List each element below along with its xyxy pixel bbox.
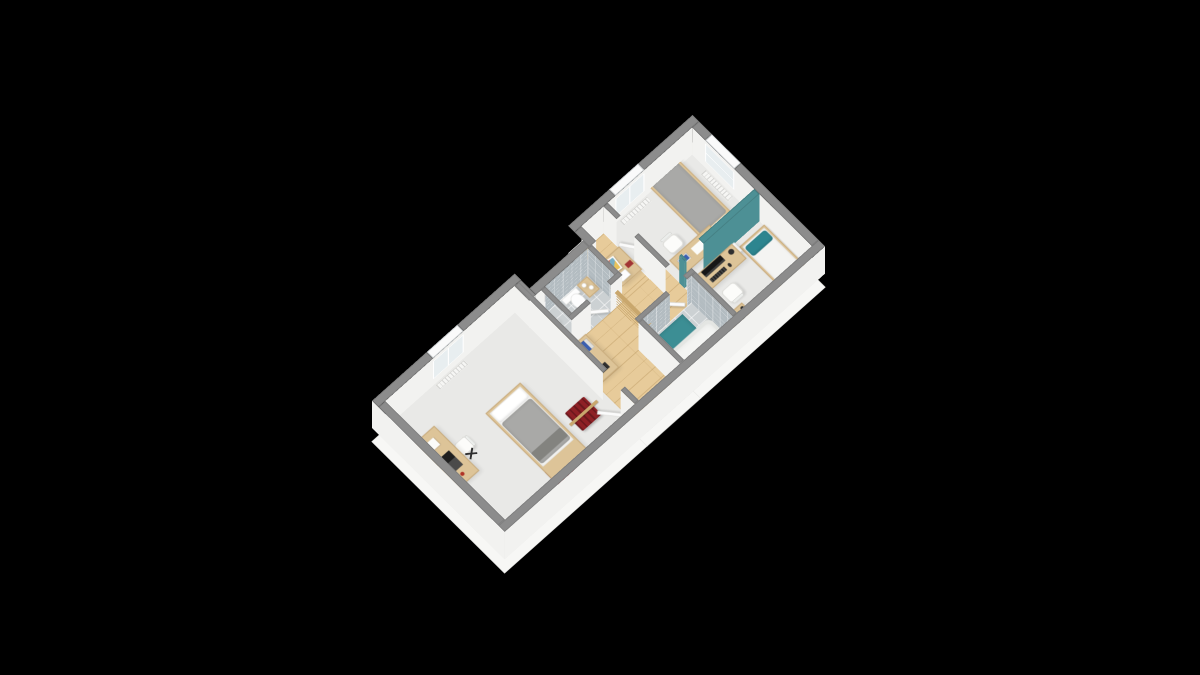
teal-wall-top (698, 189, 759, 244)
window-frame-top (609, 164, 644, 196)
wall-top (635, 291, 670, 323)
wall-top (607, 271, 622, 285)
wall-top (621, 387, 639, 404)
wall-top (691, 272, 737, 317)
wall-top (692, 121, 712, 140)
wall-top (457, 274, 521, 331)
wall-top (541, 287, 576, 321)
wall-top (372, 352, 433, 407)
wall-top (588, 245, 623, 279)
wall-top (529, 241, 589, 295)
wall-top (568, 299, 591, 320)
wall-top (634, 233, 669, 268)
window-frame-top (705, 134, 741, 169)
wall-top (638, 319, 684, 364)
window-frame-top (427, 325, 464, 359)
wall-top (603, 203, 620, 219)
render-viewport (0, 0, 1200, 675)
wall-top (638, 115, 699, 170)
wall-top (515, 282, 607, 373)
